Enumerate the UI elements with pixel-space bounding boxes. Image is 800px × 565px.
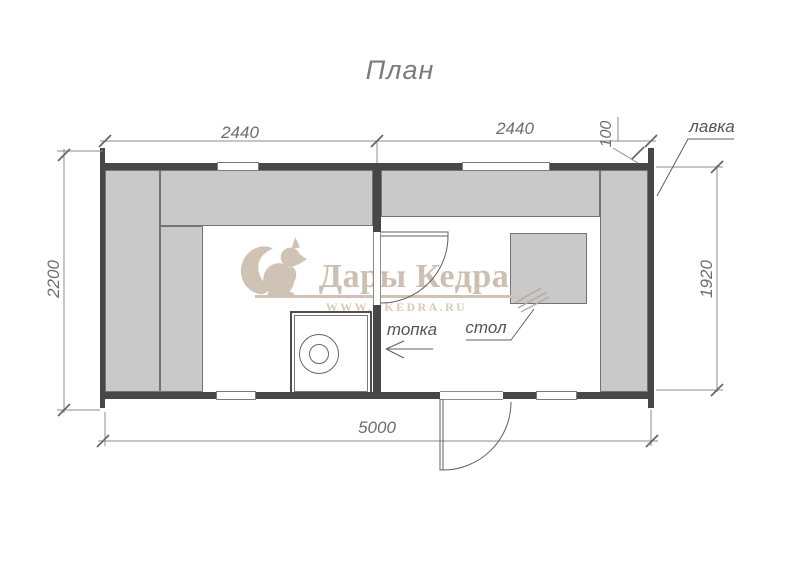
window-top-left	[217, 162, 259, 171]
watermark-url: WWW.DKEDRA.RU	[324, 300, 469, 315]
entrance-door-opening	[440, 391, 503, 400]
wall-right	[648, 148, 654, 408]
floor-plan-canvas: План Дары Кедра WWW.DKEDRA.RU	[0, 0, 800, 565]
dim-top-offset: 100	[598, 104, 616, 164]
dim-right-depth: 1920	[697, 249, 717, 309]
wall-left	[100, 148, 105, 408]
partition-wall-upper	[373, 170, 381, 232]
bench-right-top	[381, 170, 600, 217]
partition-door-opening	[373, 232, 381, 305]
window-top-right	[462, 162, 550, 171]
label-bench: лавка	[682, 117, 742, 137]
squirrel-icon	[236, 236, 308, 298]
dim-bottom-total: 5000	[347, 418, 407, 438]
page-title: План	[330, 55, 470, 86]
partition-wall-lower	[373, 305, 381, 392]
watermark-underline	[255, 295, 520, 298]
label-firebox: топка	[382, 320, 442, 340]
stove-burner-inner	[309, 344, 329, 364]
window-bottom-right	[536, 391, 577, 400]
dim-left-depth: 2200	[44, 249, 64, 309]
window-bottom-left	[216, 391, 256, 400]
bench-left-column	[105, 170, 160, 392]
label-table: стол	[456, 318, 516, 338]
dim-top-left: 2440	[210, 123, 270, 143]
stove	[290, 311, 372, 396]
bench-left-top	[160, 170, 373, 226]
watermark-brand: Дары Кедра	[304, 258, 524, 296]
wall-top	[105, 163, 648, 170]
bench-right-column	[600, 170, 648, 392]
dim-top-right: 2440	[485, 119, 545, 139]
bench-left-lower-column	[160, 226, 203, 392]
